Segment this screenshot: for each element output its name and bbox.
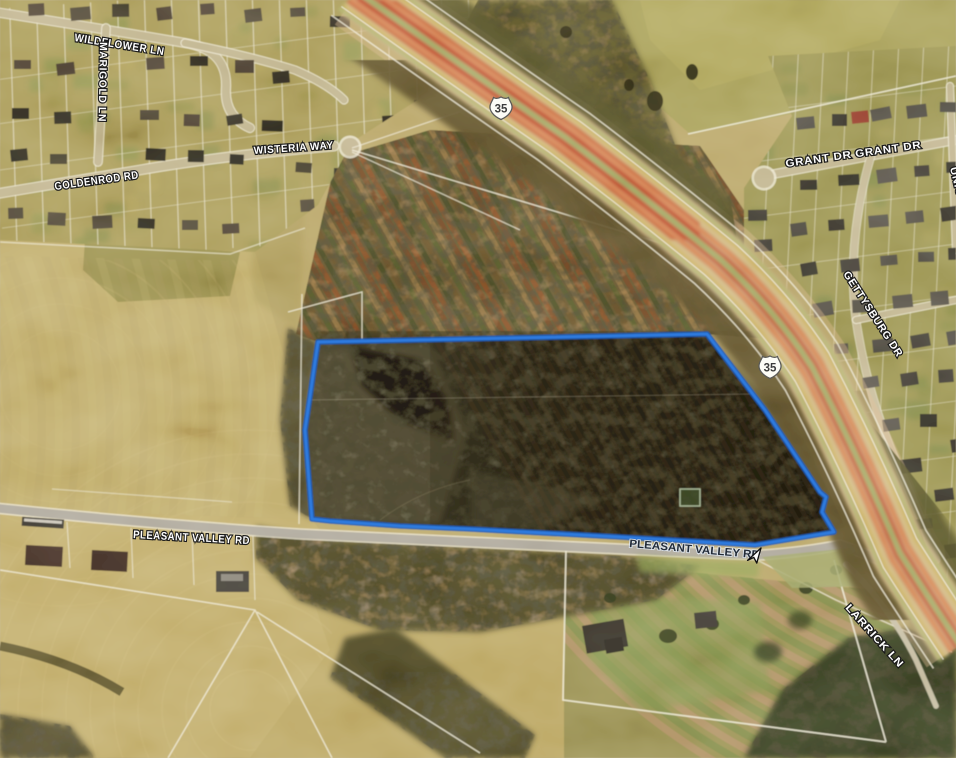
svg-text:35: 35 — [495, 104, 508, 116]
svg-text:35: 35 — [764, 363, 777, 375]
svg-text:MARIGOLD LN: MARIGOLD LN — [96, 42, 109, 122]
